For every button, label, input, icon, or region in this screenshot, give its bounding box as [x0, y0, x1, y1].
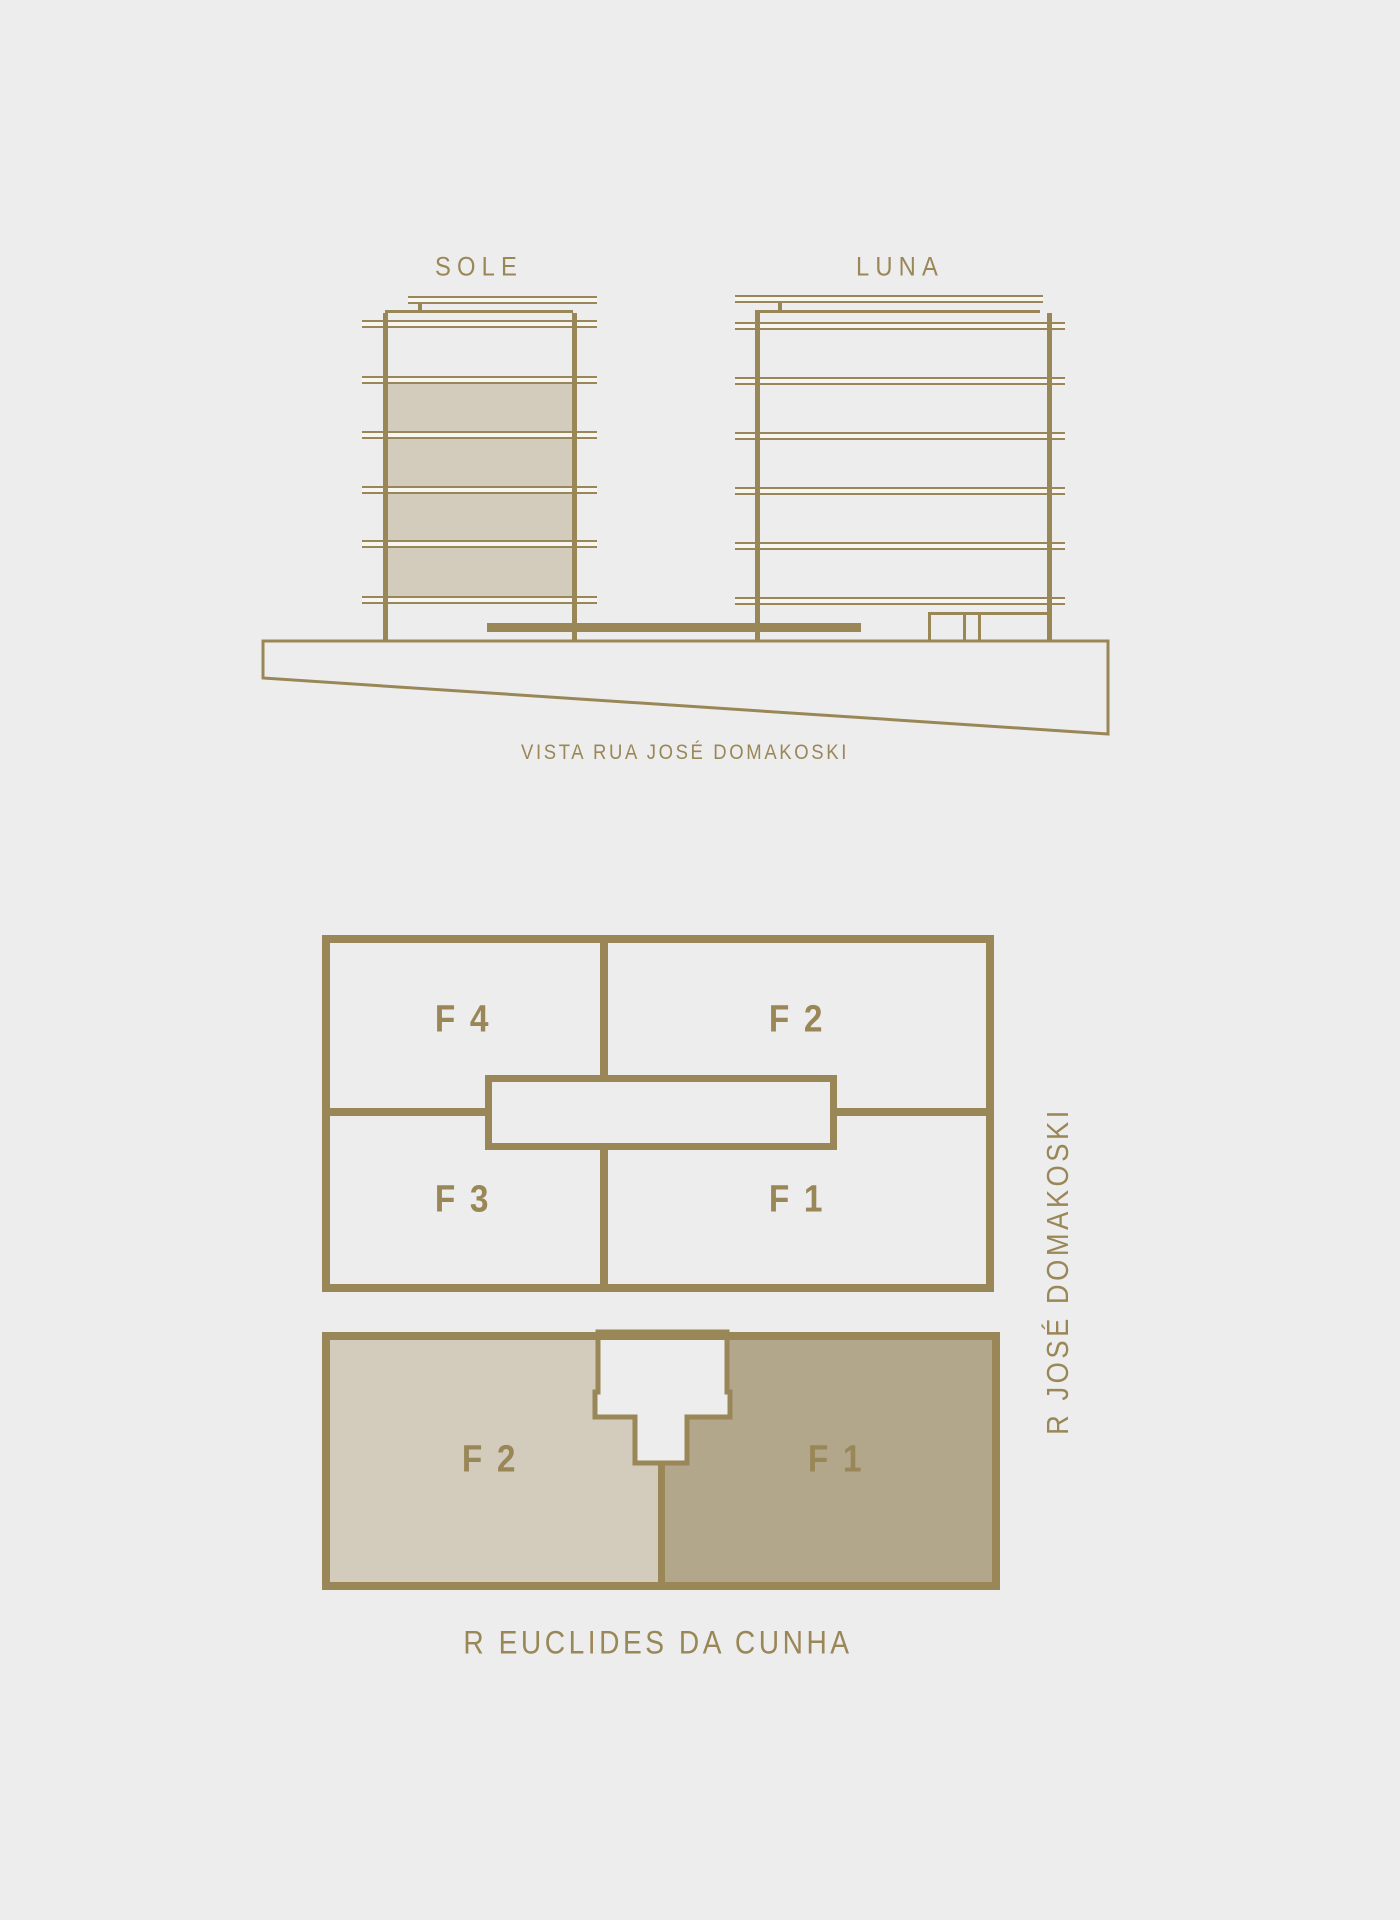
- sole-roof-slab: [408, 296, 597, 304]
- luna-entrance-post: [963, 615, 966, 641]
- sole-column-left: [383, 313, 388, 641]
- floor-slab: [735, 597, 1065, 605]
- unit-f4-label: F 4: [435, 999, 491, 1042]
- floor-slab: [362, 596, 597, 604]
- luna-column-right: [1047, 313, 1052, 641]
- luna-parapet-line: [755, 310, 1040, 313]
- luna-roof-slab: [735, 295, 1043, 303]
- floor-slab: [362, 431, 597, 439]
- site-diagram: SOLE LUNA VISTA RUA JOSÉ DOMAKOSKI F 4 F…: [0, 0, 1400, 1920]
- floor-slab: [362, 486, 597, 494]
- typical-floor-plan: [322, 935, 994, 1292]
- luna-entrance-post: [978, 615, 981, 641]
- walkway-bar: [487, 623, 861, 632]
- ground-f2-label: F 2: [462, 1439, 518, 1482]
- elevation-caption: VISTA RUA JOSÉ DOMAKOSKI: [521, 741, 849, 765]
- sole-upper-slab: [362, 320, 597, 328]
- luna-column-left: [755, 313, 760, 641]
- floor-slab: [735, 487, 1065, 495]
- luna-upper-slab: [735, 322, 1065, 330]
- floor-slab: [735, 432, 1065, 440]
- floor-slab: [735, 377, 1065, 385]
- luna-entrance-ledge: [928, 612, 1048, 615]
- street-label-euclides-da-cunha: R EUCLIDES DA CUNHA: [463, 1625, 852, 1662]
- luna-entrance-post: [928, 615, 931, 641]
- ground-plinth: [263, 641, 1108, 734]
- floor-slab: [362, 540, 597, 548]
- street-label-jose-domakoski: R JOSÉ DOMAKOSKI: [1040, 1107, 1076, 1435]
- unit-f3-label: F 3: [435, 1179, 491, 1222]
- sole-building-label: SOLE: [435, 252, 523, 283]
- floor-slab: [362, 376, 597, 384]
- floor-slab: [735, 542, 1065, 550]
- sole-column-right: [572, 313, 577, 641]
- unit-f2-label: F 2: [769, 999, 825, 1042]
- luna-building-label: LUNA: [856, 252, 944, 283]
- ground-floor-plan: [322, 1332, 1000, 1590]
- ground-f1-label: F 1: [808, 1439, 864, 1482]
- unit-f1-label: F 1: [769, 1179, 825, 1222]
- sole-parapet-line: [385, 310, 573, 313]
